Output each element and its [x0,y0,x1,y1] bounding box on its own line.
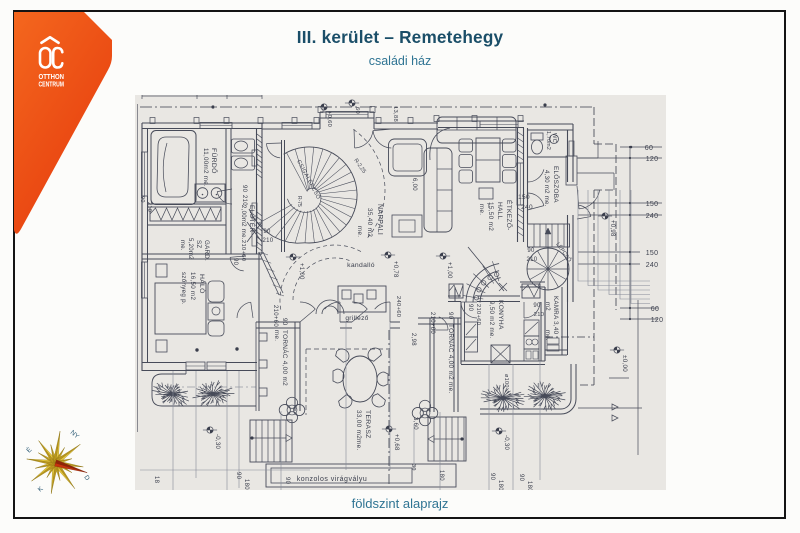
svg-text:90: 90 [139,196,145,203]
svg-text:R-75: R-75 [296,196,302,207]
svg-text:33,00 m2me.: 33,00 m2me. [355,410,362,451]
svg-text:90: 90 [518,474,524,482]
svg-text:210+60: 210+60 [475,304,481,325]
svg-text:210: 210 [534,312,545,318]
svg-text:me.: me. [356,226,363,237]
svg-text:3,60: 3,60 [412,417,418,430]
svg-text:120: 120 [651,317,664,324]
svg-text:30: 30 [410,464,416,471]
svg-text:ø100: ø100 [503,374,509,388]
svg-text:ÉTKEZŐ-: ÉTKEZŐ- [505,200,514,231]
svg-text:180: 180 [438,470,444,481]
svg-text:210+60: 210+60 [429,312,435,334]
svg-text:240+60: 240+60 [395,296,401,317]
svg-text:+0,78: +0,78 [392,261,398,278]
svg-text:+0,98: +0,98 [609,220,615,237]
svg-text:90: 90 [281,318,288,326]
svg-text:szőnyeg p.: szőnyeg p. [180,272,187,305]
svg-text:TERASZ: TERASZ [364,410,371,439]
svg-text:11,00m2 me.: 11,00m2 me. [202,148,209,187]
svg-text:60: 60 [354,107,360,114]
svg-text:-0,30: -0,30 [503,435,509,451]
svg-text:+1,00: +1,00 [298,263,304,280]
svg-text:240: 240 [646,213,659,220]
svg-text:15,50 m2: 15,50 m2 [487,202,494,231]
svg-text:É: É [24,445,34,455]
svg-text:90: 90 [527,248,535,254]
svg-text:240: 240 [521,204,533,211]
svg-text:±0,00: ±0,00 [621,355,628,372]
svg-text:90: 90 [263,229,271,235]
svg-text:13,88: 13,88 [392,106,398,122]
svg-text:NY: NY [69,429,81,441]
svg-text:90: 90 [241,185,247,193]
svg-text:KAMRA 3,40: KAMRA 3,40 [552,296,559,335]
svg-text:+1,00: +1,00 [446,262,452,279]
svg-text:35,40 m2: 35,40 m2 [366,208,373,237]
svg-text:90: 90 [489,473,495,481]
svg-text:ELŐSZOBA: ELŐSZOBA [552,166,561,203]
svg-text:210: 210 [146,202,152,212]
svg-text:me.: me. [273,330,280,341]
svg-text:150: 150 [646,250,659,257]
svg-text:150: 150 [646,201,659,208]
svg-text:CENTRUM: CENTRUM [39,79,65,88]
svg-text:150: 150 [518,194,530,201]
svg-text:6,00: 6,00 [411,178,417,191]
svg-text:90: 90 [467,304,473,312]
svg-text:210: 210 [263,238,274,244]
svg-text:90: 90 [533,303,541,309]
svg-text:TORNÁC 4,00 m2: TORNÁC 4,00 m2 [281,330,290,386]
svg-text:m2: m2 [544,302,550,311]
svg-text:-0,30: -0,30 [214,434,220,450]
svg-text:240: 240 [646,262,659,269]
svg-text:KONYHA: KONYHA [497,300,504,330]
svg-text:grillező: grillező [345,315,368,322]
svg-text:90: 90 [284,477,290,485]
svg-text:HALL: HALL [496,202,503,220]
svg-text:210+60: 210+60 [272,305,278,327]
svg-text:1,70m2: 1,70m2 [545,131,551,150]
svg-text:NAPPALI: NAPPALI [376,204,383,235]
svg-text:2,00m2 me.: 2,00m2 me. [240,205,246,240]
svg-text:D: D [82,474,91,482]
svg-text:60: 60 [645,145,653,152]
svg-text:210: 210 [527,257,538,263]
svg-text:120: 120 [646,156,659,163]
svg-text:HÁLÓ: HÁLÓ [198,274,207,294]
svg-text:180: 180 [243,479,249,490]
svg-text:90: 90 [232,258,238,266]
svg-text:me.: me. [544,330,550,341]
svg-text:5,20m2: 5,20m2 [187,238,193,260]
svg-text:210+60: 210+60 [240,240,246,261]
svg-text:SZ: SZ [195,240,202,249]
svg-text:FÜRDŐ: FÜRDŐ [210,148,219,174]
svg-text:16,50 m2: 16,50 m2 [189,272,196,300]
svg-text:kandalló: kandalló [347,262,375,269]
svg-text:2,98: 2,98 [410,333,416,346]
svg-text:180: 180 [526,481,532,490]
svg-text:K: K [37,485,45,494]
svg-text:9,50 m2 me.: 9,50 m2 me. [488,301,495,339]
svg-text:180: 180 [497,480,503,490]
svg-text:TORNÁC 4,00 m2 me.: TORNÁC 4,00 m2 me. [447,324,456,394]
svg-text:GARD.: GARD. [203,240,210,261]
svg-text:4,30 m2 me.: 4,30 m2 me. [543,170,549,207]
svg-text:90: 90 [447,312,454,320]
svg-text:90: 90 [235,472,241,480]
svg-text:+0,60: +0,60 [326,111,332,127]
svg-text:konzolos virágvályu: konzolos virágvályu [297,476,368,483]
svg-text:+0,68: +0,68 [393,434,399,451]
svg-text:ELŐTÉR: ELŐTÉR [248,205,257,232]
svg-text:me.: me. [478,204,485,215]
svg-text:18: 18 [153,476,159,484]
svg-text:60: 60 [651,306,659,313]
svg-text:me.: me. [179,240,185,251]
